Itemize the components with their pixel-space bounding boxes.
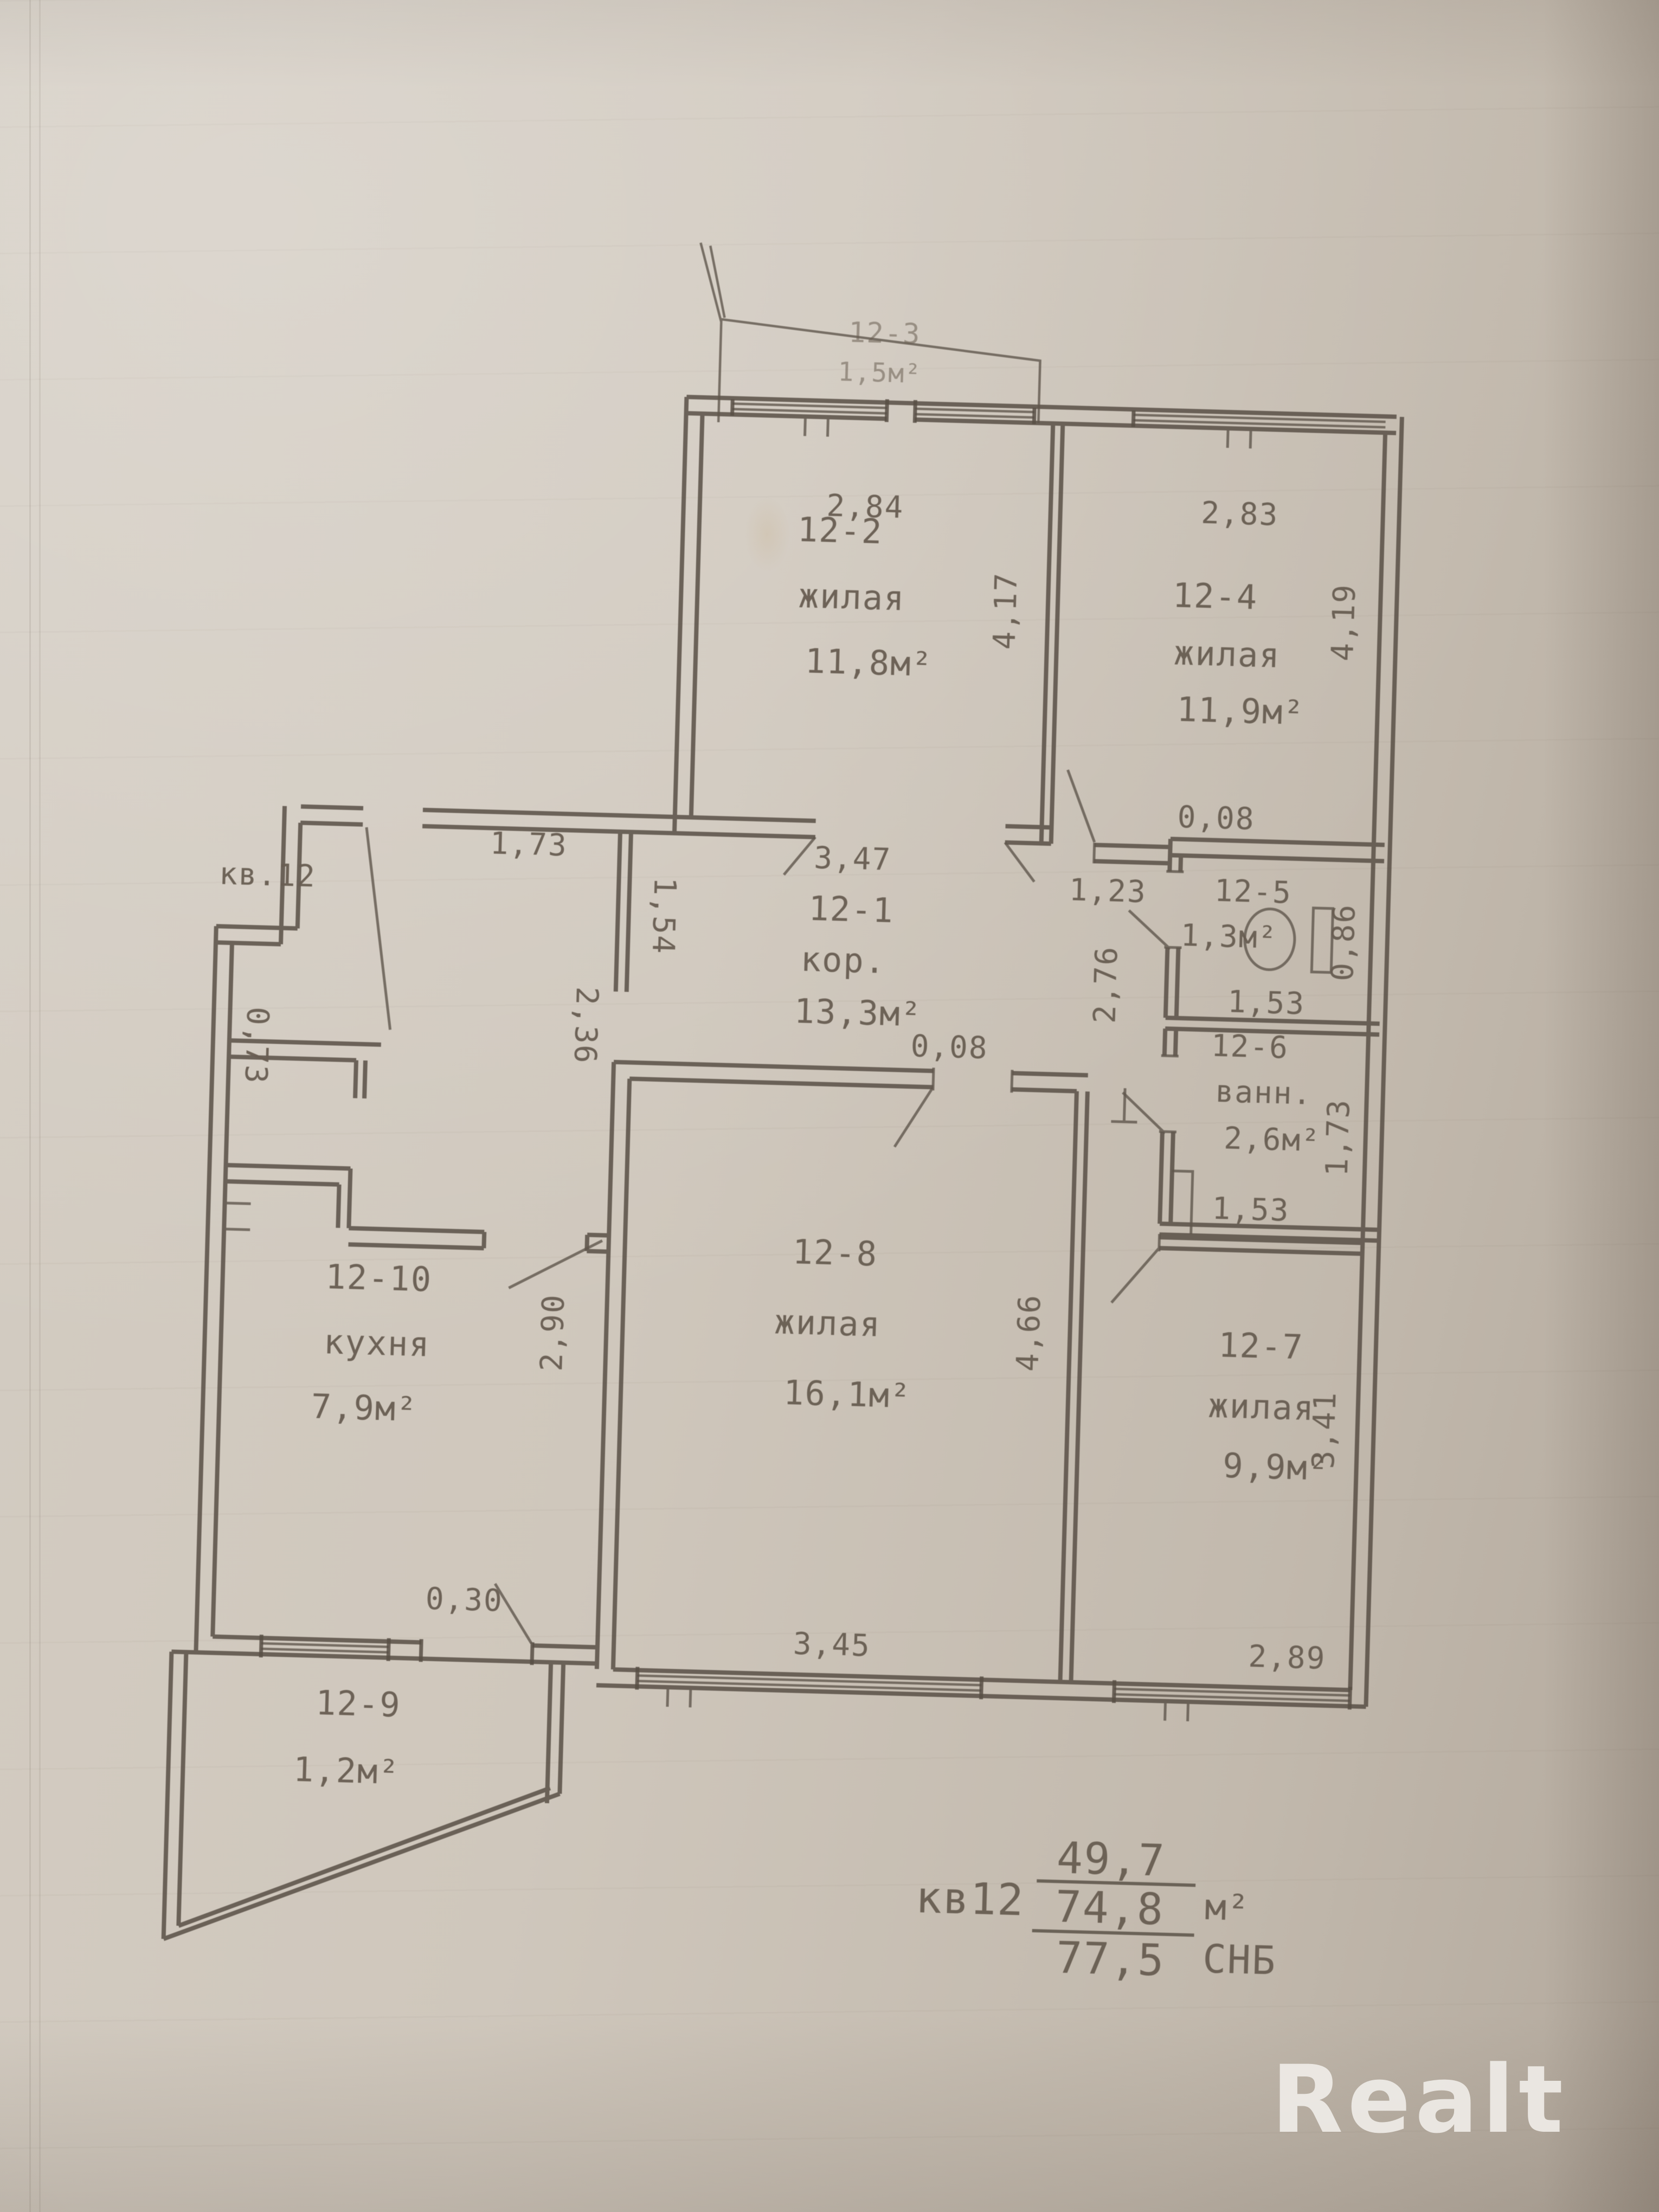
room-12-8-type: жилая	[774, 1302, 882, 1344]
dim-2-84: 2,84	[826, 488, 905, 525]
room-12-10-area: 7,9м²	[311, 1387, 419, 1429]
bath-fixture-icon	[1108, 1088, 1195, 1234]
room-12-7-type: жилая	[1208, 1386, 1316, 1428]
radiator-marks	[213, 403, 1251, 1722]
floor-plan: 12-3 1,5м² 12-2 жилая 11,8м² 12-4 жилая …	[163, 229, 1406, 1991]
dim-1-73-top: 1,73	[490, 826, 568, 863]
room-12-9-area: 1,2м²	[293, 1750, 401, 1792]
dim-1-54: 1,54	[645, 877, 683, 955]
room-12-7-number: 12-7	[1218, 1325, 1304, 1367]
dim-2-36: 2,36	[567, 986, 605, 1065]
room-12-9-number: 12-9	[315, 1683, 401, 1725]
walls-path	[164, 383, 1402, 1972]
dim-0-30: 0,30	[425, 1581, 504, 1619]
dim-1-73-bath: 1,73	[1320, 1098, 1357, 1177]
dim-4-19: 4,19	[1325, 583, 1362, 662]
room-12-3-area: 1,5м²	[838, 357, 922, 389]
dim-1-53-wc: 1,53	[1227, 984, 1306, 1021]
room-12-4-number: 12-4	[1172, 575, 1258, 617]
room-12-2-type: жилая	[798, 576, 906, 618]
dim-2-76: 2,76	[1087, 946, 1124, 1024]
summary-snb-value: 77,5	[1056, 1932, 1166, 1986]
room-12-2-area: 11,8м²	[805, 641, 934, 684]
dim-4-17: 4,17	[987, 571, 1025, 650]
room-12-1-type: кор.	[800, 939, 886, 981]
dim-2-89: 2,89	[1248, 1639, 1327, 1676]
room-12-5-number: 12-5	[1214, 873, 1293, 911]
dim-0-08-room8: 0,08	[910, 1028, 989, 1066]
dim-2-90: 2,90	[534, 1294, 571, 1372]
dim-0-73: 0,73	[238, 1006, 275, 1085]
dim-0-08-wc: 0,08	[1177, 800, 1256, 837]
room-12-10-type: кухня	[323, 1322, 431, 1364]
door-leaves	[344, 750, 1186, 1661]
dim-4-66: 4,66	[1010, 1294, 1047, 1372]
realt-watermark: Realt	[1271, 2045, 1567, 2154]
summary-block: кв12 49,7 74,8 м² 77,5 СНБ	[914, 1829, 1280, 1989]
summary-living-area: 49,7	[1056, 1832, 1166, 1886]
dim-3-45: 3,45	[793, 1626, 871, 1664]
dim-1-23: 1,23	[1069, 872, 1147, 910]
dim-1-53-bath: 1,53	[1212, 1191, 1290, 1229]
floor-plan-svg: 12-3 1,5м² 12-2 жилая 11,8м² 12-4 жилая …	[0, 0, 1659, 2212]
doors	[344, 750, 1186, 1661]
room-12-5-area: 1,3м²	[1180, 918, 1278, 956]
room-12-1-area: 13,3м²	[794, 991, 923, 1034]
room-12-4-area: 11,9м²	[1176, 690, 1306, 733]
room-12-4-type: жилая	[1173, 633, 1281, 675]
room-12-8-number: 12-8	[792, 1232, 878, 1274]
summary-total-units: м²	[1204, 1886, 1251, 1929]
room-12-8-area: 16,1м²	[783, 1373, 912, 1416]
dim-3-47: 3,47	[813, 840, 892, 878]
room-12-6-number: 12-6	[1211, 1028, 1289, 1066]
room-labels: 12-3 1,5м² 12-2 жилая 11,8м² 12-4 жилая …	[194, 299, 1361, 1818]
dim-0-86: 0,86	[1325, 903, 1362, 982]
summary-apartment: кв12	[915, 1872, 1025, 1926]
room-12-6-type: ванн.	[1215, 1074, 1313, 1112]
room-12-1-number: 12-1	[808, 889, 894, 930]
room-12-10-number: 12-10	[325, 1257, 433, 1299]
dim-3-41: 3,41	[1306, 1391, 1343, 1469]
summary-snb-units: СНБ	[1202, 1936, 1277, 1984]
summary-total-area: 74,8	[1054, 1881, 1165, 1935]
room-12-3-number: 12-3	[848, 316, 921, 351]
apartment-note: кв.12	[218, 856, 316, 894]
dim-2-83: 2,83	[1200, 496, 1279, 533]
room-12-6-area: 2,6м²	[1223, 1121, 1321, 1159]
